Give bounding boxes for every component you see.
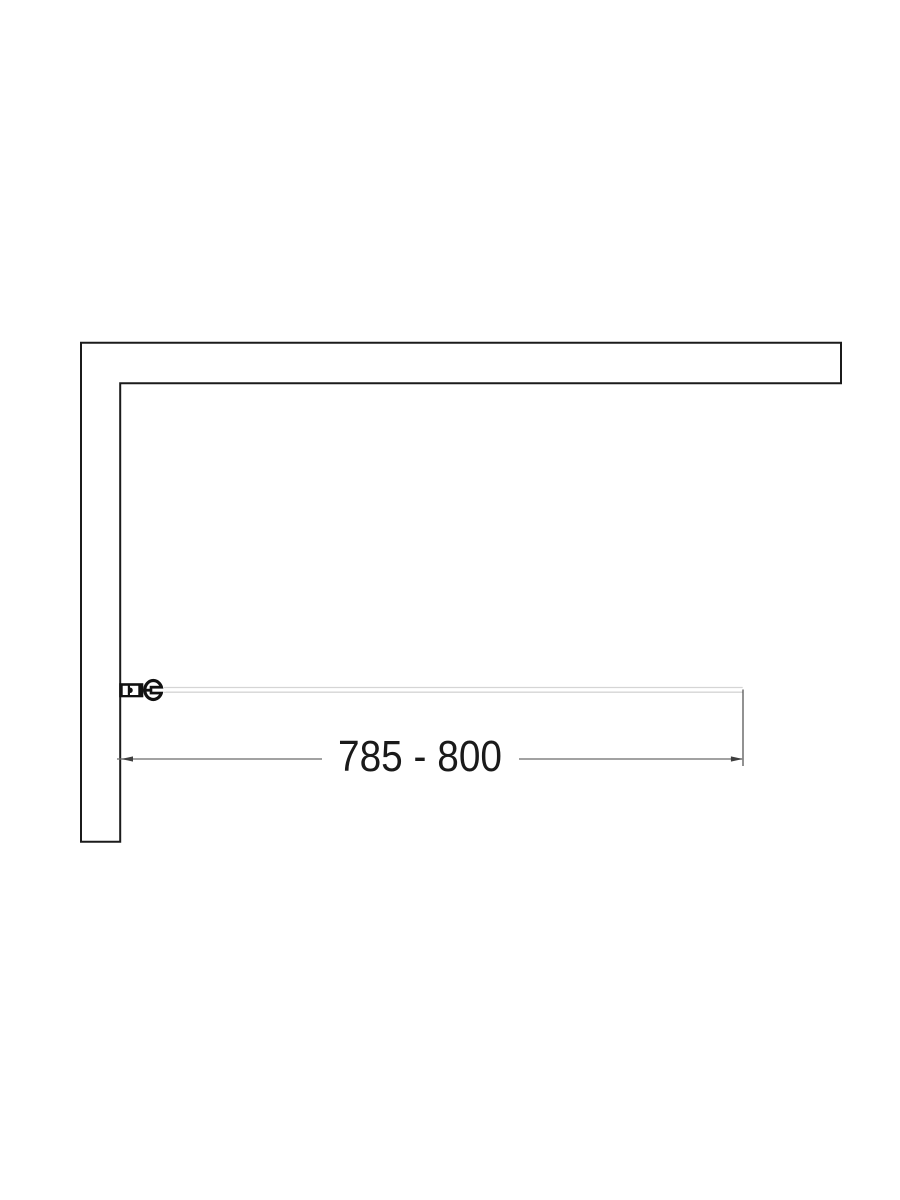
svg-text:785 - 800: 785 - 800 <box>338 732 502 781</box>
